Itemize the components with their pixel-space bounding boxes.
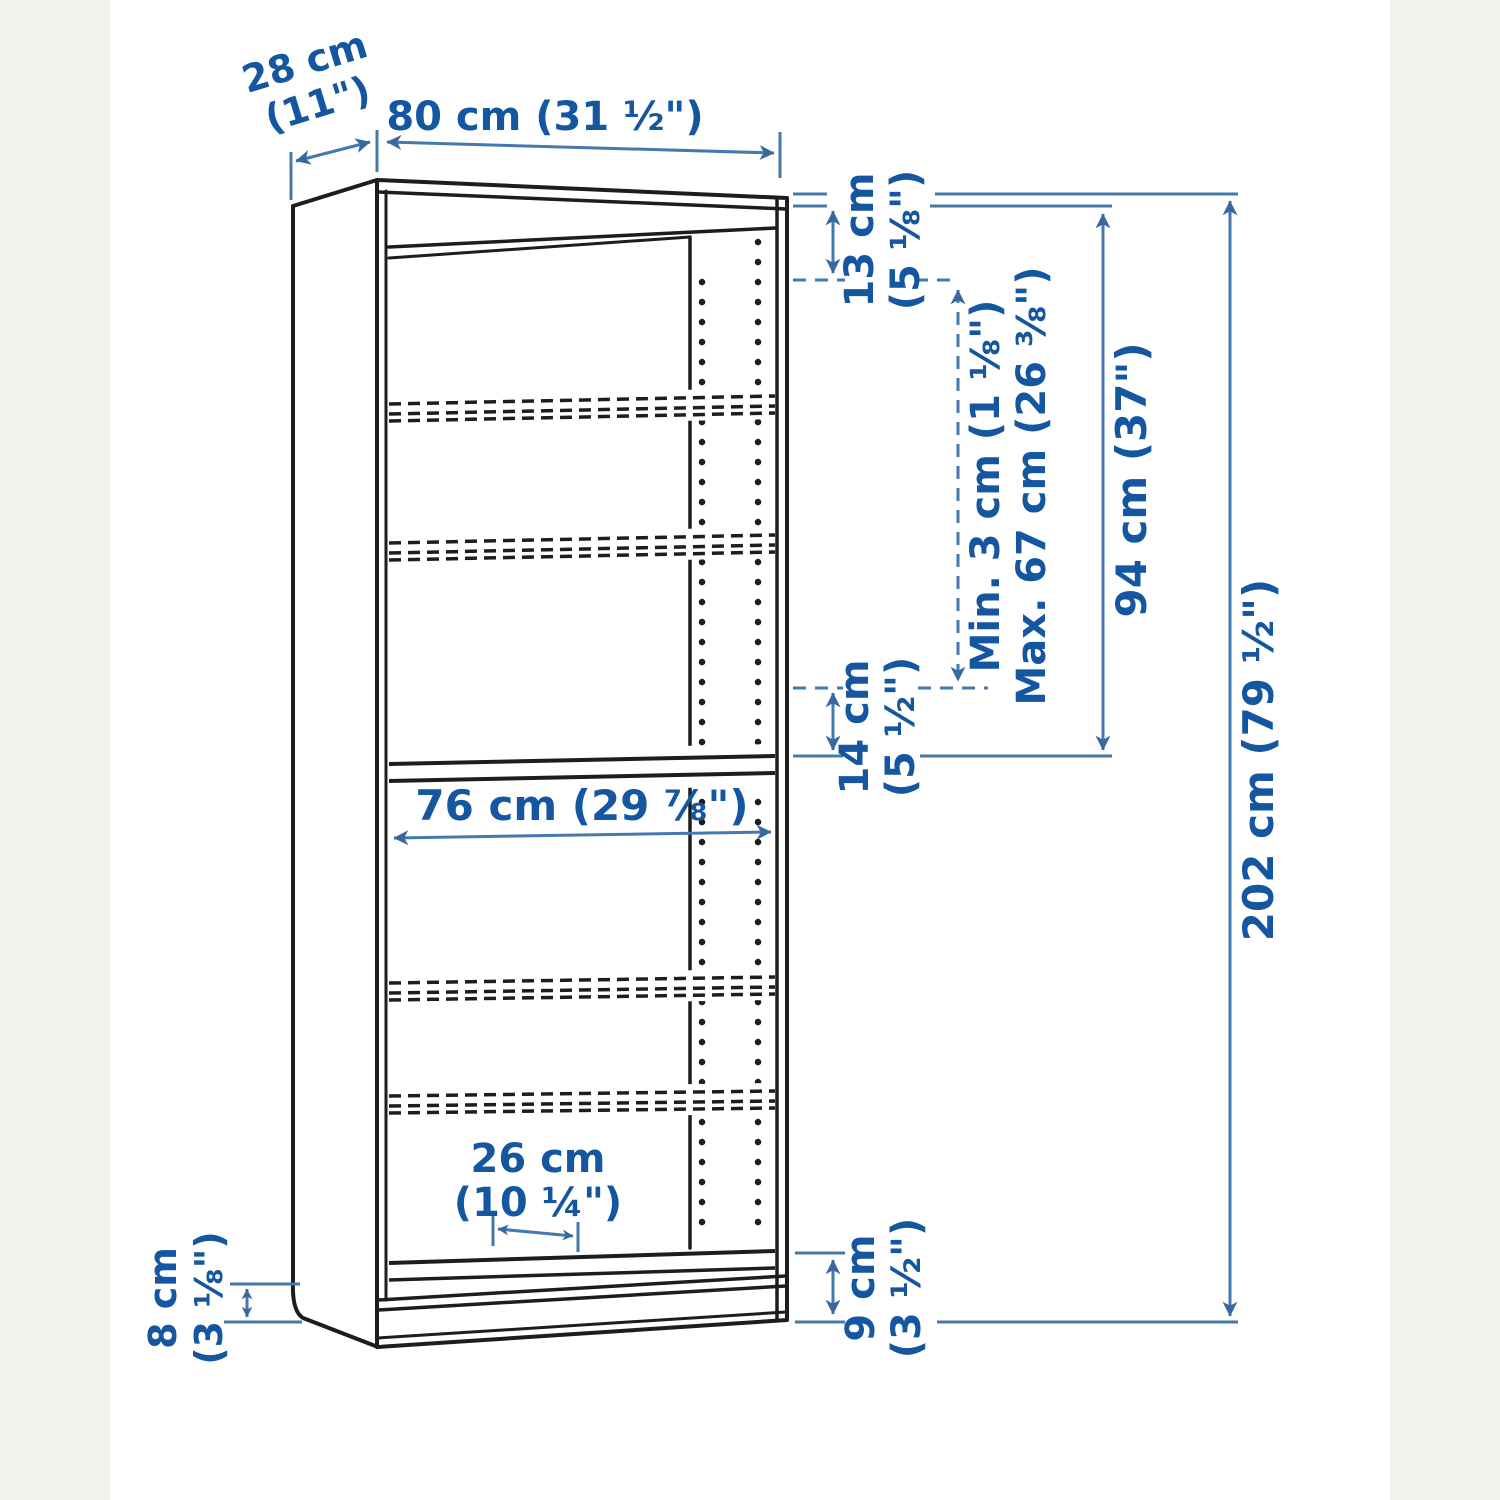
dim-base-side-label-cm: 8 cm	[141, 1247, 185, 1349]
dim-height-label: 202 cm (79 ½")	[1234, 579, 1283, 941]
dim-base-side-lines	[224, 1284, 302, 1322]
bookcase-dimension-diagram: 28 cm (11") 80 cm (31 ½") 13 cm (5 ⅛") M…	[0, 0, 1500, 1500]
dim-mid-gap-label-cm: 14 cm	[832, 660, 878, 795]
dim-upper-section-label: 94 cm (37")	[1107, 342, 1156, 617]
dim-base-front-label-in: (3 ½")	[884, 1218, 930, 1359]
dim-base-side-label-in: (3 ⅛")	[187, 1231, 231, 1365]
dim-shelf-depth-label-in: (10 ¼")	[454, 1180, 622, 1226]
dim-shelf-max-label: Max. 67 cm (26 ⅜")	[1009, 266, 1055, 705]
dim-top-gap-label-cm: 13 cm	[837, 173, 883, 308]
dim-mid-gap-label-in: (5 ½")	[878, 657, 924, 798]
dimension-diagram-page: 28 cm (11") 80 cm (31 ½") 13 cm (5 ⅛") M…	[0, 0, 1500, 1500]
dim-inner-width-label: 76 cm (29 ⅞")	[415, 781, 748, 830]
dim-shelf-depth-label-cm: 26 cm	[471, 1136, 606, 1182]
dim-top-gap-label-in: (5 ⅛")	[883, 170, 929, 311]
dim-minmax-lines	[793, 290, 988, 688]
dim-base-front-label-cm: 9 cm	[838, 1234, 884, 1341]
dim-width-label: 80 cm (31 ½")	[386, 94, 703, 140]
dim-shelf-min-label: Min. 3 cm (1 ⅛")	[963, 300, 1009, 673]
